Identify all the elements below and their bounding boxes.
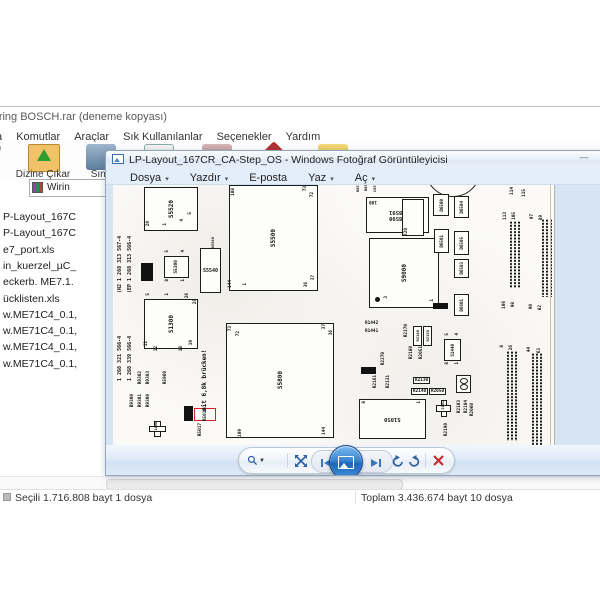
- pcb-lab-r2180: R2180: [409, 346, 414, 359]
- pcb-pin-73: 73: [228, 326, 233, 331]
- file-row[interactable]: w.ME71C4_0.1,: [3, 341, 77, 355]
- chevron-down-icon: ▾: [330, 176, 334, 183]
- pcb-lab-r2270: R2270: [381, 352, 386, 365]
- rotate-cw-icon: [407, 454, 421, 468]
- pcb-bbox-s5530: S5530: [141, 263, 153, 281]
- minimize-button[interactable]: —: [576, 152, 592, 164]
- pcb-cross-2101: 2101: [436, 400, 451, 417]
- slideshow-icon: [338, 456, 354, 469]
- rotate-ccw-icon: [391, 454, 405, 468]
- next-icon: [369, 457, 383, 469]
- next-button[interactable]: [367, 453, 385, 472]
- pcb-scan-image: (N2 1 268 313 567-4(EP 1 268 313 566-41 …: [113, 185, 555, 445]
- photo-viewer-window: LP-Layout_167CR_CA-Step_OS - Windows Fot…: [105, 150, 600, 476]
- pcb-box-d6601: D6601: [454, 294, 469, 316]
- pcb-pinU-100: 100: [369, 199, 377, 204]
- pcb-pin-1: 1: [455, 362, 460, 365]
- delete-button[interactable]: [429, 451, 447, 470]
- pcb-pin-72: 72: [310, 192, 315, 197]
- zoom-caret-icon: ▼: [259, 458, 265, 464]
- pcb-strip: [506, 351, 519, 441]
- pcb-pin-82: 82: [538, 305, 543, 310]
- pcb-box-d6504: D6504: [454, 196, 469, 218]
- pcb-pin-144: 144: [322, 427, 327, 435]
- pcb-pin-26: 26: [185, 293, 190, 298]
- photo-viewer-icon: [112, 154, 124, 164]
- pcb-lab-r2161: R2161: [373, 375, 378, 388]
- pcb-bboxh-10k: 10K: [361, 367, 376, 374]
- archive-icon: [32, 182, 43, 193]
- pcb-pin-1: 1: [163, 223, 168, 226]
- winrar-title: Wiring BOSCH.rar (deneme kopyası): [0, 111, 167, 123]
- pcb-pin-19: 19: [189, 340, 194, 345]
- pcb-pin-1: 1: [430, 299, 435, 302]
- pcb-pin-144: 144: [228, 280, 233, 288]
- viewer-menu-bar: Dosya▾Yazdır▾E-postaYaz▾Aç▾: [106, 168, 600, 185]
- desktop: Wiring BOSCH.rar (deneme kopyası) DosyaK…: [0, 0, 600, 600]
- file-row[interactable]: P-Layout_167C: [3, 227, 76, 241]
- pcb-pin-5: 5: [188, 212, 193, 215]
- toolbar-separator: [287, 453, 288, 468]
- pcb-lab-r9300: R9300: [146, 394, 151, 407]
- pcb-pin-11: 11: [144, 341, 149, 346]
- pcb-hbox-r2050: R2050: [429, 388, 446, 395]
- pcb-pin-25: 25: [193, 299, 198, 304]
- pcb-redtext-mit-6-8k-br-cken: mit 6,8k brücken!: [201, 343, 208, 411]
- pcb-pin-12: 12: [154, 346, 159, 351]
- pcb-strip: [541, 219, 553, 297]
- pcb-chip-s1440: S1440: [444, 339, 461, 361]
- status-selected: Seçili 1.716.808 bayt 1 dosya: [15, 492, 152, 504]
- pcb-pin-106: 106: [502, 301, 507, 309]
- pcb-lab-ep-1-268-313-566-4: (EP 1 268 313 566-4: [127, 193, 133, 293]
- pcb-pin-36: 36: [304, 282, 309, 287]
- pcb-pin-20: 20: [146, 221, 151, 226]
- file-row[interactable]: w.ME71C4_0.1,: [3, 325, 77, 339]
- viewer-menu-yaz[interactable]: Yaz▾: [302, 171, 340, 184]
- viewer-menu-dosya[interactable]: Dosya▾: [124, 171, 175, 184]
- viewer-title: LP-Layout_167CR_CA-Step_OS - Windows Fot…: [129, 154, 448, 166]
- delete-icon: [432, 454, 445, 467]
- pcb-box-d6501: D6501: [434, 229, 449, 253]
- status-total: Toplam 3.436.674 bayt 10 dosya: [361, 492, 513, 504]
- viewer-menu-e-posta[interactable]: E-posta: [243, 171, 293, 184]
- pcb-pin-108: 108: [231, 188, 236, 196]
- pcb-pin-72: 72: [236, 331, 241, 336]
- pcb-box-r2160: R2160: [413, 326, 422, 346]
- winrar-button-dizine-kar[interactable]: Dizine Çıkar: [14, 142, 72, 180]
- pcb-lab-1-268-321-566-4: 1 268 321 566-4: [117, 301, 123, 381]
- pcb-pin-90: 90: [529, 304, 534, 309]
- winrar-title-bar[interactable]: Wiring BOSCH.rar (deneme kopyası): [0, 107, 600, 127]
- file-row[interactable]: w.ME71C4_0.1,: [3, 309, 77, 323]
- viewer-control-pill: ▼: [238, 447, 455, 474]
- pcb-pin-113: 113: [503, 212, 508, 220]
- extract-folder-icon: [28, 144, 60, 172]
- pcb-vline: [550, 185, 551, 445]
- pcb-pin-4: 4: [181, 250, 186, 253]
- slideshow-button[interactable]: [329, 445, 363, 476]
- winrar-menu-bar: DosyaKomutlarAraçlarSık KullanılanlarSeç…: [0, 127, 600, 142]
- pcb-pin-4: 4: [180, 219, 185, 222]
- winrar-button-ekle[interactable]: Ekle: [0, 142, 14, 180]
- pcb-lab-1-268-339-566-4: 1 268 339 566-4: [127, 301, 133, 381]
- file-row[interactable]: in_kuerzel_µC_: [3, 260, 76, 274]
- pcb-pin-8: 8: [500, 345, 505, 348]
- key-icon: [3, 493, 11, 501]
- viewer-menu-a[interactable]: Aç▾: [349, 171, 381, 184]
- winrar-status-bar: Seçili 1.716.808 bayt 1 dosya Toplam 3.4…: [0, 489, 600, 505]
- pcb-pin-26: 26: [509, 345, 514, 350]
- pcb-pin-63: 63: [537, 348, 542, 353]
- pcb-strip: [509, 221, 522, 288]
- file-row[interactable]: eckerb. ME7.1.: [3, 276, 74, 290]
- pcb-pin-105: 105: [512, 212, 517, 220]
- pcb-chip-s5800: S5800: [226, 323, 334, 438]
- pcb-lab-r2131: R2131: [386, 375, 391, 388]
- pcb-pin-3: 3: [384, 296, 389, 299]
- pcb-dbox-d9500: [456, 375, 471, 393]
- pcb-pin-5: 5: [445, 333, 450, 336]
- pcb-lab-r5960: R5960: [163, 371, 168, 384]
- pcb-pin-8: 8: [445, 362, 450, 365]
- horizontal-scrollbar[interactable]: [0, 476, 600, 490]
- pcb-chip-s5520: S5520: [144, 187, 198, 231]
- pcb-pin-98: 98: [511, 302, 516, 307]
- pcb-lab-r2190: R2190: [444, 423, 449, 436]
- pcb-pin-73: 73: [303, 186, 308, 191]
- viewer-content-area: (N2 1 268 313 567-4(EP 1 268 313 566-41 …: [106, 185, 600, 445]
- file-row[interactable]: P-Layout_167C: [3, 211, 76, 225]
- pcb-lab-b850: B850: [363, 185, 368, 191]
- pcb-pin-18: 18: [179, 346, 184, 351]
- pcb-lab-c859: C859: [372, 185, 377, 192]
- pcb-pin-5: 5: [165, 250, 170, 253]
- fit-to-window-icon: [294, 454, 308, 468]
- pcb-box-r2150: R2150: [423, 326, 432, 346]
- pcb-lab-r2060: R2060: [470, 403, 475, 416]
- pcb-box-d6503: D6503: [454, 259, 469, 278]
- pcb-pin-8: 8: [362, 401, 367, 404]
- pcb-hbox-r2130: R2130: [413, 377, 430, 384]
- pcb-cross-1400: 1400: [149, 421, 166, 437]
- viewer-toolbar: ▼: [106, 445, 600, 475]
- pcb-pin-8: 8: [165, 279, 170, 282]
- pcb-pin-1: 1: [181, 279, 186, 282]
- pcb-pin-114: 114: [510, 187, 515, 195]
- rotate-cw-button[interactable]: [405, 451, 423, 470]
- pcb-chip-s5300: S5300: [164, 256, 189, 278]
- pcb-lab-r9303: R9303: [146, 371, 151, 384]
- pcb-chipU-s1050: S1050: [359, 399, 426, 439]
- toolbar-separator: [425, 453, 426, 468]
- pcb-lab-b5540: B5540: [210, 237, 215, 248]
- file-row[interactable]: ücklisten.xls: [3, 293, 60, 307]
- file-row[interactable]: w.ME71C4_0.1,: [3, 358, 77, 372]
- viewer-title-bar[interactable]: LP-Layout_167CR_CA-Step_OS - Windows Fot…: [106, 151, 600, 168]
- pcb-pin-89: 89: [539, 215, 544, 220]
- pcb-box-d6505: D6505: [454, 231, 469, 255]
- pcb-chip-s5500: S5500: [229, 185, 318, 291]
- pcb-lab-r2103: R2103: [457, 400, 462, 413]
- pcb-lab-r2051: R2051: [419, 346, 424, 359]
- pcb-dot: [375, 297, 380, 302]
- pcb-lab-n2-1-268-313-567-4: (N2 1 268 313 567-4: [117, 193, 123, 293]
- zoom-button[interactable]: ▼: [247, 451, 265, 470]
- pcb-pin-37: 37: [311, 275, 316, 280]
- chevron-down-icon: ▾: [372, 176, 376, 183]
- pcb-box-d6500: D6500: [433, 194, 449, 216]
- pcb-pin-37: 37: [322, 324, 327, 329]
- pcb-bboxh-10k: 10K: [433, 303, 448, 309]
- status-divider: [355, 491, 356, 504]
- pcb-labh-r1442: R1442: [365, 321, 378, 326]
- magnifier-icon: [247, 453, 258, 468]
- pcb-lab-r5017: R5017: [198, 423, 203, 436]
- pcb-pin-36: 36: [329, 330, 334, 335]
- pcb-lab-b9300: B9300: [130, 394, 135, 407]
- archive-name: Wirin: [47, 182, 70, 193]
- pcb-pin-97: 97: [530, 214, 535, 219]
- chevron-down-icon: ▾: [165, 176, 169, 183]
- pcb-lab-r2170: R2170: [404, 324, 409, 337]
- pcb-oval-s5540: S5540: [200, 248, 221, 293]
- pcb-hbox-r2140: R2140: [411, 388, 428, 395]
- pcb-pin-1: 1: [243, 283, 248, 286]
- pcb-pin-115: 115: [522, 189, 527, 197]
- pcb-pin-220: 220: [404, 228, 409, 236]
- pcb-pin-5: 5: [146, 293, 151, 296]
- pcb-lab-r2104: R2104: [464, 400, 469, 413]
- viewer-menu-yazd-r[interactable]: Yazdır▾: [184, 171, 235, 184]
- pcb-labh-r1441: R1441: [365, 329, 378, 334]
- file-row[interactable]: e7_port.xls: [3, 244, 54, 258]
- pcb-pin-1: 1: [165, 293, 170, 296]
- pcb-lab-r9302: R9302: [138, 371, 143, 384]
- fit-to-window-button[interactable]: [292, 451, 310, 470]
- pcb-lab-r851: R851: [355, 185, 360, 192]
- pcb-pin-4: 4: [455, 333, 460, 336]
- pcb-pin-1: 1: [417, 401, 422, 404]
- pcb-bbox-r5060: R5060: [184, 406, 193, 421]
- pcb-lab-r9301: R9301: [138, 394, 143, 407]
- chevron-down-icon: ▾: [225, 176, 229, 183]
- pcb-pin-44: 44: [527, 347, 532, 352]
- pcb-strip: [531, 353, 544, 445]
- pcb-pin-109: 109: [238, 429, 243, 437]
